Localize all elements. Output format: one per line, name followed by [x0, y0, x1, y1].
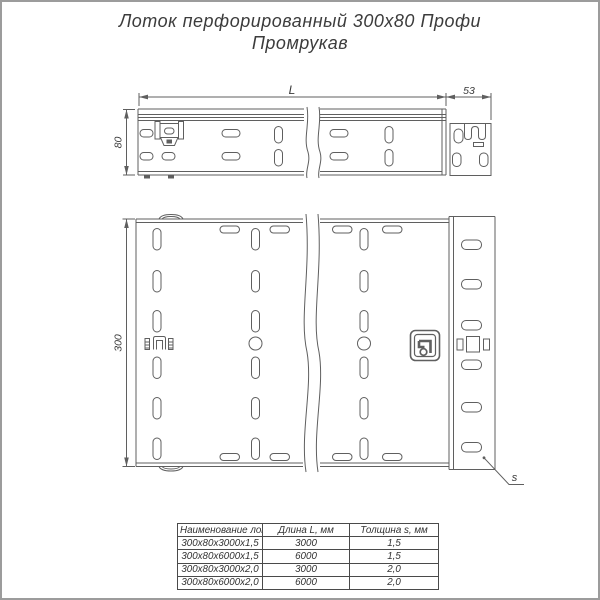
plan-view-body [136, 215, 449, 472]
dimension-length: L [139, 83, 446, 106]
cell-length: 6000 [263, 576, 350, 589]
cell-name: 300х80х6000х1,5 [178, 550, 263, 563]
side-view-body [138, 109, 446, 179]
cell-length: 3000 [263, 537, 350, 550]
dim-label-end-width: 53 [463, 85, 475, 97]
table-header-row: Наименование лотка Длина L, мм Толщина s… [178, 524, 439, 537]
cell-name: 300х80х3000х2,0 [178, 563, 263, 576]
cell-thickness: 2,0 [350, 563, 439, 576]
drawing-sheet: Лоток перфорированный 300х80 Профи Промр… [0, 0, 600, 600]
side-view-latch [155, 122, 184, 146]
header-name: Наименование лотка [178, 524, 263, 537]
side-view-connector-end [450, 124, 491, 176]
cell-thickness: 2,0 [350, 576, 439, 589]
cell-length: 6000 [263, 550, 350, 563]
cell-name: 300х80х6000х2,0 [178, 576, 263, 589]
dimension-end-width: 53 [446, 85, 491, 120]
dimension-thickness: s [483, 456, 524, 484]
side-view: L 53 80 [113, 83, 492, 179]
side-view-break [304, 105, 321, 179]
dim-label-thickness: s [512, 472, 518, 484]
header-thickness: Толщина s, мм [350, 524, 439, 537]
dimension-width: 300 [113, 219, 136, 467]
cell-name: 300х80х3000х1,5 [178, 537, 263, 550]
dimension-height: 80 [113, 110, 136, 176]
cell-thickness: 1,5 [350, 550, 439, 563]
table-row: 300х80х3000х1,5 3000 1,5 [178, 537, 439, 550]
dim-label-length: L [289, 83, 296, 97]
header-length: Длина L, мм [263, 524, 350, 537]
plan-view: 300 [113, 212, 525, 485]
table-row: 300х80х6000х2,0 6000 2,0 [178, 576, 439, 589]
plan-view-latch [145, 337, 173, 350]
spec-table: Наименование лотка Длина L, мм Толщина s… [177, 523, 439, 590]
cell-thickness: 1,5 [350, 537, 439, 550]
table-row: 300х80х6000х1,5 6000 1,5 [178, 550, 439, 563]
plan-view-connector-band [449, 217, 495, 470]
table-row: 300х80х3000х2,0 3000 2,0 [178, 563, 439, 576]
side-view-perforations [140, 127, 393, 167]
plan-view-perforations [153, 226, 402, 461]
dim-label-height: 80 [113, 137, 125, 149]
cell-length: 3000 [263, 563, 350, 576]
dim-label-width: 300 [113, 334, 125, 352]
plan-view-break [303, 212, 321, 473]
technical-drawing: L 53 80 [2, 2, 600, 600]
brand-logo [411, 331, 440, 361]
